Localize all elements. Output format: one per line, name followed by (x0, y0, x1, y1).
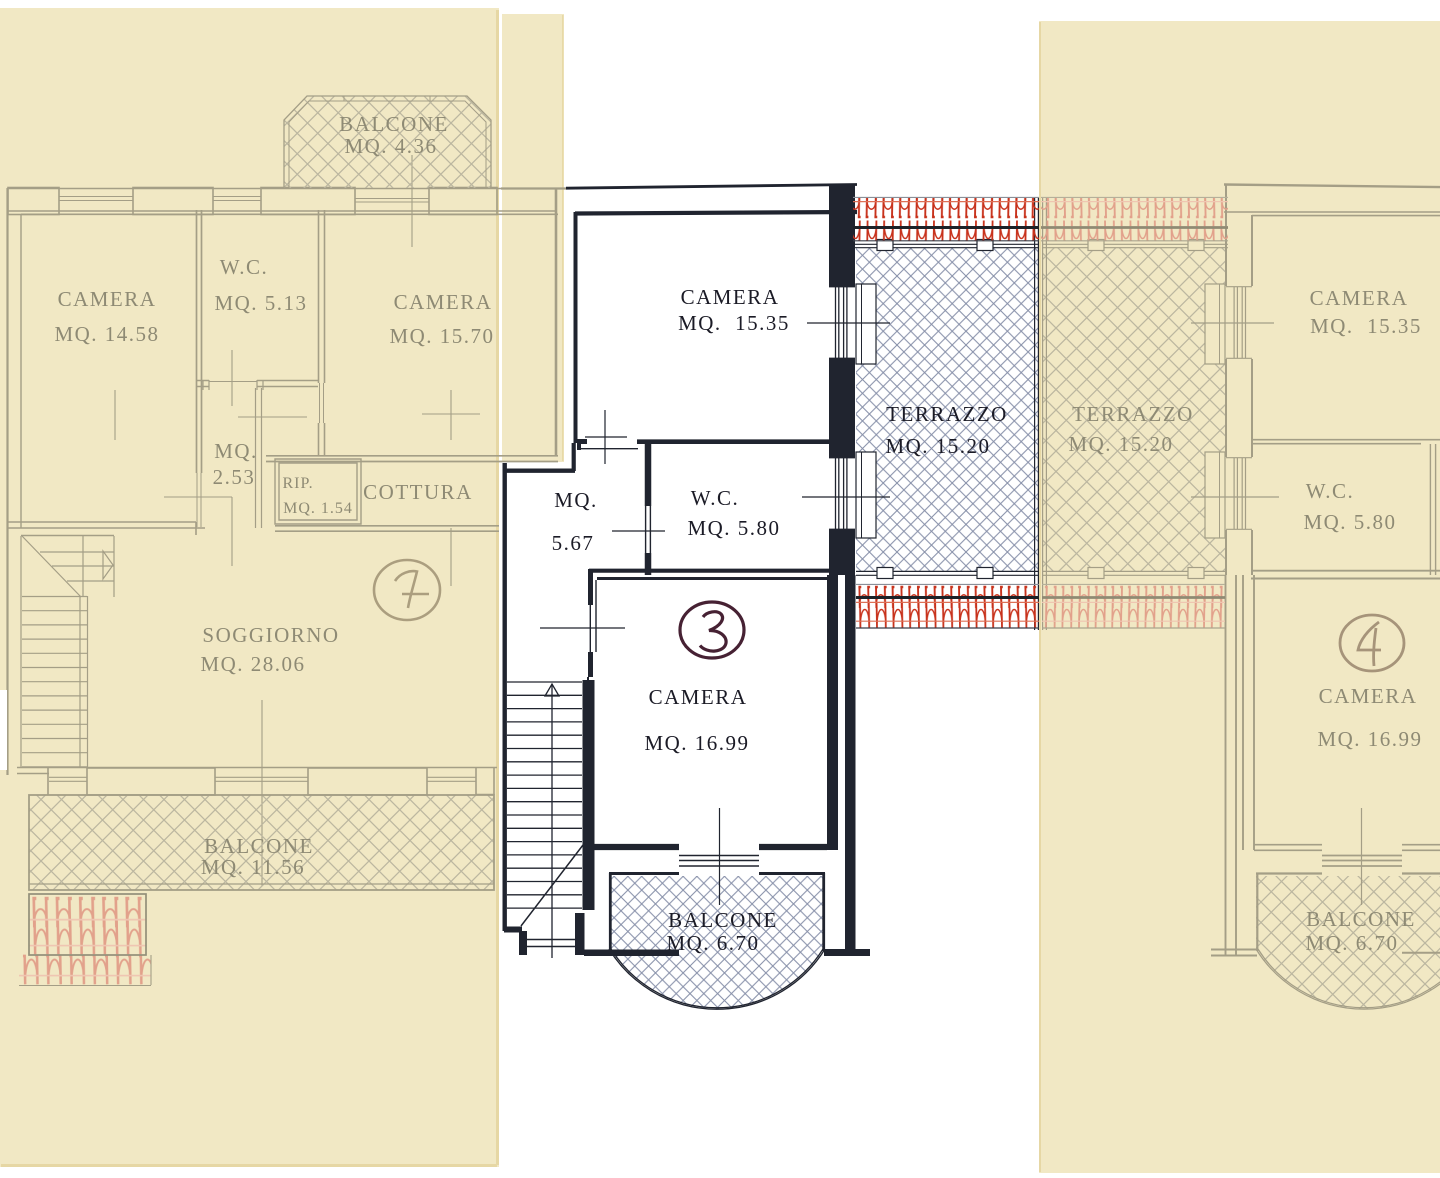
svg-text:W.C.: W.C. (691, 486, 739, 510)
svg-text:MQ. 16.99: MQ. 16.99 (1317, 727, 1422, 751)
svg-text:TERRAZZO: TERRAZZO (886, 402, 1008, 426)
svg-text:MQ. 1.54: MQ. 1.54 (283, 500, 353, 517)
svg-text:MQ. 5.80: MQ. 5.80 (687, 516, 780, 540)
svg-text:2.53: 2.53 (213, 465, 256, 489)
svg-text:MQ. 15.70: MQ. 15.70 (389, 324, 494, 348)
svg-text:MQ. 5.80: MQ. 5.80 (1303, 510, 1396, 534)
svg-text:CAMERA: CAMERA (1319, 684, 1418, 708)
svg-text:MQ. 15.20: MQ. 15.20 (885, 434, 990, 458)
svg-text:MQ. 6.70: MQ. 6.70 (1305, 931, 1398, 955)
svg-text:MQ. 15.20: MQ. 15.20 (1068, 432, 1173, 456)
svg-text:MQ. 15.35: MQ. 15.35 (1310, 314, 1422, 338)
svg-text:RIP.: RIP. (282, 475, 313, 492)
svg-text:CAMERA: CAMERA (649, 685, 748, 709)
svg-text:MQ. 4.36: MQ. 4.36 (344, 134, 437, 158)
svg-text:BALCONE: BALCONE (1306, 907, 1416, 931)
svg-text:MQ. 14.58: MQ. 14.58 (54, 322, 159, 346)
svg-text:5.67: 5.67 (552, 531, 595, 555)
svg-text:TERRAZZO: TERRAZZO (1072, 402, 1194, 426)
svg-text:W.C.: W.C. (220, 255, 268, 279)
svg-text:MQ.: MQ. (554, 488, 598, 512)
svg-text:MQ. 6.70: MQ. 6.70 (666, 931, 759, 955)
svg-text:MQ. 5.13: MQ. 5.13 (214, 291, 307, 315)
svg-text:SOGGIORNO: SOGGIORNO (202, 623, 339, 647)
svg-text:BALCONE: BALCONE (339, 112, 449, 136)
svg-text:MQ. 15.35: MQ. 15.35 (678, 311, 790, 335)
svg-text:CAMERA: CAMERA (394, 290, 493, 314)
svg-text:CAMERA: CAMERA (1310, 286, 1409, 310)
svg-text:CAMERA: CAMERA (681, 285, 780, 309)
svg-text:MQ.: MQ. (214, 439, 258, 463)
svg-text:MQ. 11.56: MQ. 11.56 (201, 855, 305, 879)
svg-text:BALCONE: BALCONE (668, 908, 778, 932)
svg-text:MQ. 16.99: MQ. 16.99 (644, 731, 749, 755)
svg-text:CAMERA: CAMERA (58, 287, 157, 311)
svg-text:W.C.: W.C. (1306, 479, 1354, 503)
svg-text:COTTURA: COTTURA (363, 480, 473, 504)
svg-text:MQ. 28.06: MQ. 28.06 (200, 652, 305, 676)
